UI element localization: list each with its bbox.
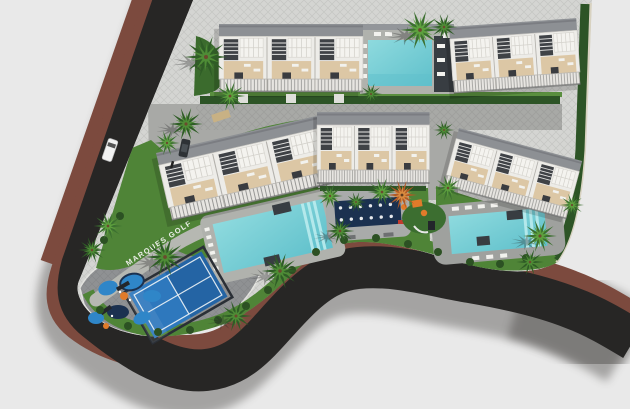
site-plan-canvas: MARQUES GOLF <box>0 0 630 409</box>
lounge-platform <box>334 197 402 229</box>
hedge-row <box>200 96 560 104</box>
entry-path <box>334 94 344 103</box>
building-block-1 <box>214 24 363 97</box>
building-block-2 <box>445 18 581 99</box>
building-block-4 <box>313 112 429 189</box>
aerial-site-plan-render: MARQUES GOLF <box>0 0 630 409</box>
entry-path <box>286 94 296 103</box>
